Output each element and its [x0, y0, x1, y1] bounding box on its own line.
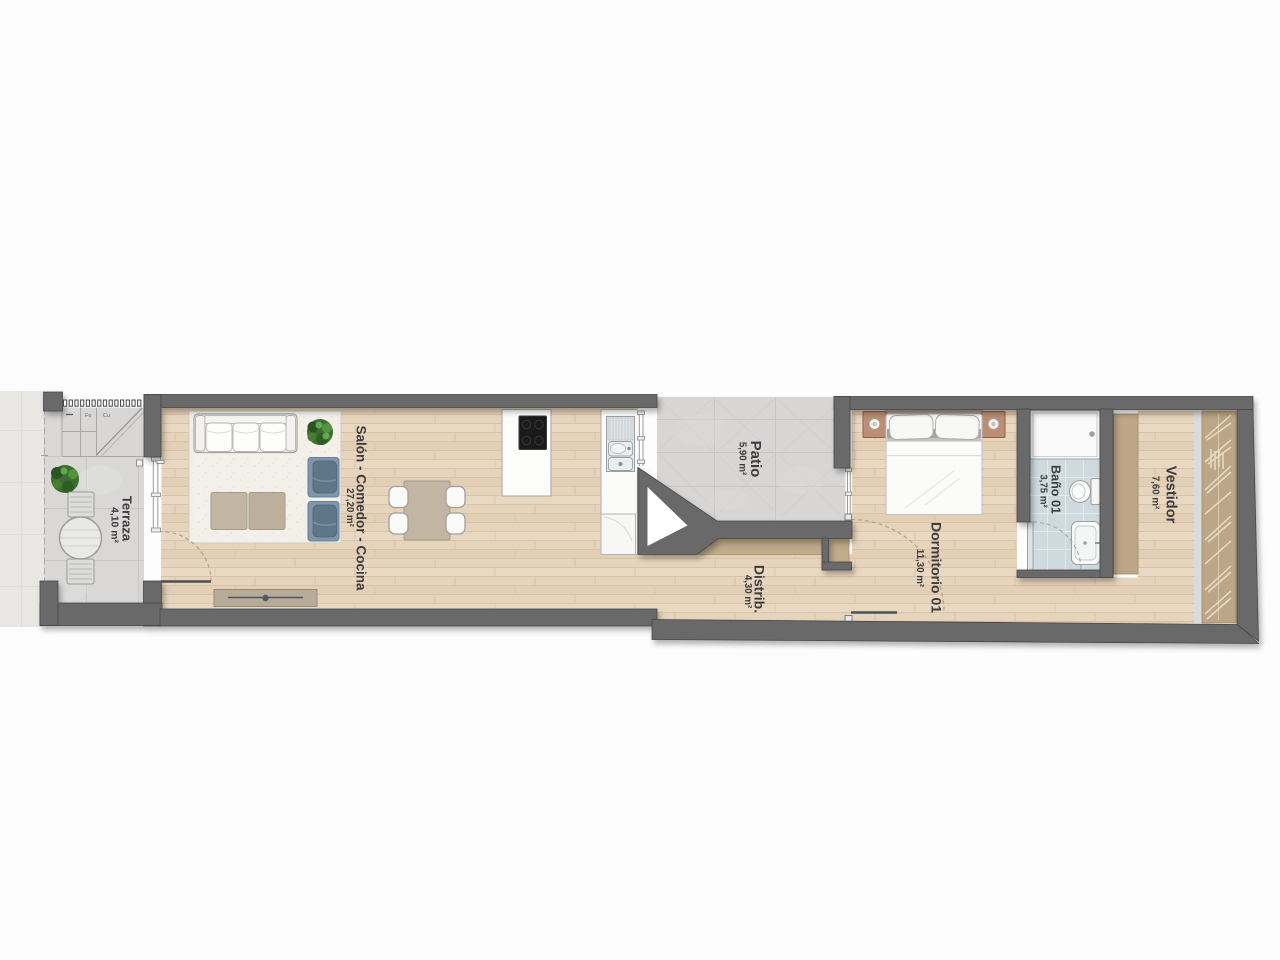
svg-text:Terraza: Terraza — [120, 496, 135, 542]
svg-text:Dormitorio 01: Dormitorio 01 — [929, 522, 945, 613]
svg-text:4,30 m²: 4,30 m² — [742, 575, 753, 609]
svg-text:Fo: Fo — [85, 413, 91, 419]
svg-text:3,75 m²: 3,75 m² — [1038, 474, 1049, 508]
svg-text:Cu: Cu — [103, 413, 110, 419]
svg-text:27,20 m²: 27,20 m² — [344, 488, 355, 528]
svg-text:5,90 m²: 5,90 m² — [737, 442, 748, 476]
svg-text:7,60 m²: 7,60 m² — [1150, 476, 1161, 510]
svg-text:Patio: Patio — [747, 441, 764, 478]
svg-text:11,30 m²: 11,30 m² — [914, 549, 925, 588]
svg-text:Baño 01: Baño 01 — [1049, 465, 1063, 514]
svg-text:Vestidor: Vestidor — [1163, 466, 1179, 524]
svg-text:4,10 m²: 4,10 m² — [109, 507, 120, 543]
